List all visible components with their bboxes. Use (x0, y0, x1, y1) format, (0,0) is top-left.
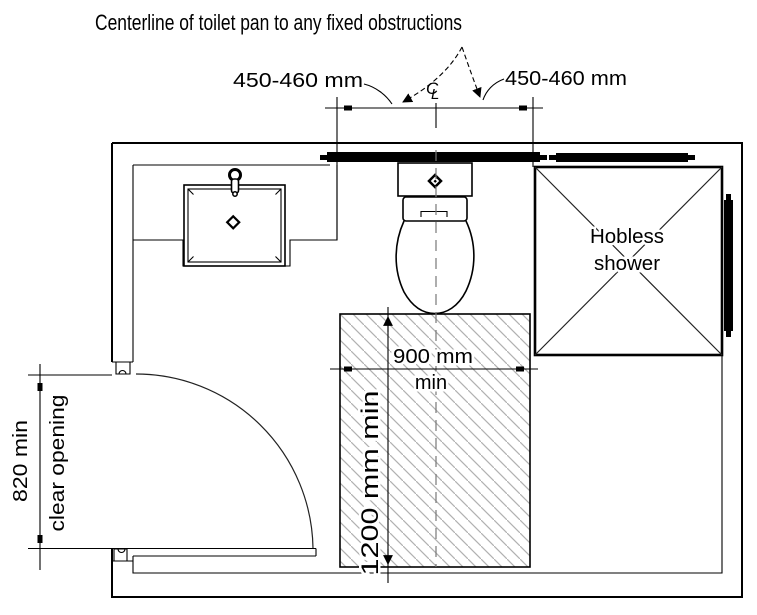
door-jamb-top (112, 362, 133, 374)
floor-plan-page: Centerline of toilet pan to any fixed ob… (0, 0, 757, 615)
label-leader-right (483, 79, 504, 100)
dim-450-left-label: 450-460 mm (233, 70, 363, 92)
dim-820-label-line1: 820 min (10, 420, 32, 502)
shower-label-line1: Hobless (590, 225, 664, 248)
toilet-flush-handle (421, 212, 447, 218)
door-leaf (28, 549, 316, 557)
door-swing-arc (136, 374, 313, 548)
floor-plan-svg: Centerline of toilet pan to any fixed ob… (0, 0, 757, 615)
dim-450-right-label: 450-460 mm (505, 68, 627, 90)
svg-text:L: L (431, 86, 439, 103)
leader-arrow-right (462, 47, 480, 97)
cistern-valve-icon (427, 173, 443, 189)
toilet-seat-hinge (403, 197, 467, 221)
grab-rail-toilet (320, 152, 547, 162)
shower-label-line2: shower (594, 252, 660, 275)
hobless-shower: Hobless shower (535, 167, 722, 355)
label-leader-left (364, 84, 392, 104)
basin (184, 170, 285, 267)
toilet-bowl (396, 221, 474, 314)
dim-900-label-line1: 900 mm (393, 346, 473, 368)
toilet (396, 163, 474, 314)
door-jamb-bottom (112, 549, 133, 561)
grab-rail-shower-side (724, 194, 733, 337)
page-title: Centerline of toilet pan to any fixed ob… (95, 10, 462, 35)
dim-900-label-line2: min (415, 372, 447, 394)
centerline-symbol: C L (426, 79, 439, 103)
dim-820-label-line2: clear opening (47, 395, 69, 532)
tap-icon (230, 170, 241, 197)
grab-rail-shower-top (549, 153, 695, 162)
door: 820 min clear opening (10, 364, 316, 570)
dim-1200-label: 1200 mm min (357, 391, 384, 576)
drain-icon (227, 216, 239, 228)
